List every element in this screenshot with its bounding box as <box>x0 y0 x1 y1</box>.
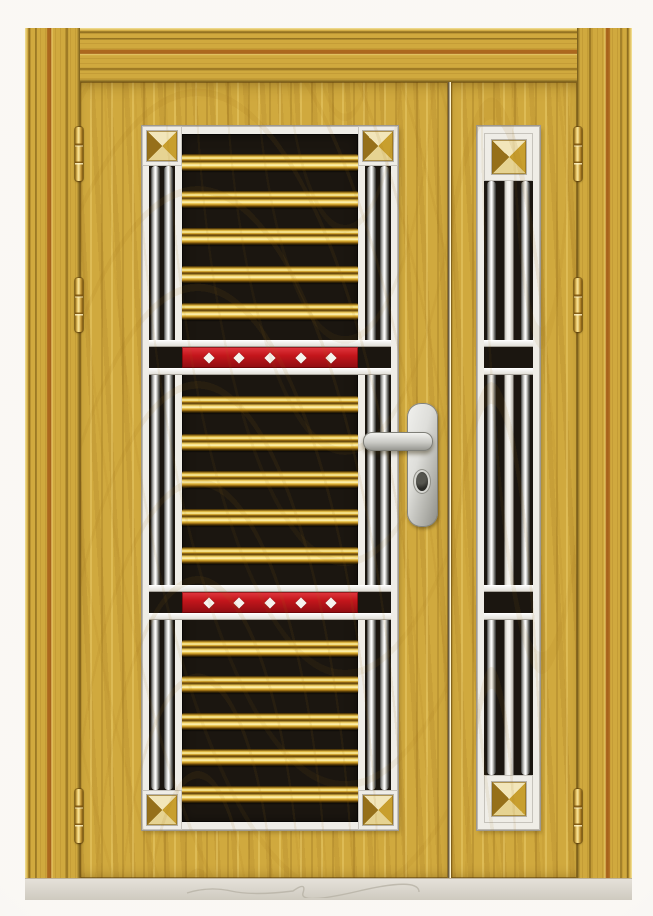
chrome-bar <box>521 181 530 775</box>
gold-bar <box>182 396 358 413</box>
door-hinge <box>574 278 582 332</box>
door-hinge <box>75 278 83 332</box>
gold-bar <box>182 676 358 693</box>
door-hinge <box>75 789 83 843</box>
pyramid-stud <box>363 131 393 161</box>
door-product-photo <box>0 0 653 916</box>
cross-rail-lower <box>149 585 391 620</box>
white-rail <box>149 340 391 347</box>
side-panel-leaf <box>451 82 577 878</box>
door-frame-top-molding <box>25 28 632 82</box>
chrome-bar <box>164 166 173 790</box>
cross-rail-infill <box>484 592 533 613</box>
gold-bar <box>182 228 358 245</box>
white-rail <box>484 613 533 620</box>
gold-bar-section-bottom <box>182 620 358 822</box>
cross-rail-upper <box>149 340 391 375</box>
corner-stud-block <box>358 126 398 166</box>
diamond-ornament <box>295 597 306 608</box>
side-bar-track <box>484 181 533 775</box>
white-rail <box>149 613 391 620</box>
chrome-bar <box>151 166 160 790</box>
pyramid-stud <box>147 131 177 161</box>
handle-backplate <box>407 403 438 527</box>
diamond-ornament <box>203 597 214 608</box>
white-rail <box>149 585 391 592</box>
gold-bar <box>182 640 358 657</box>
door-handle <box>363 403 438 527</box>
diamond-ornament <box>234 597 245 608</box>
door-frame-right-molding <box>577 28 632 878</box>
gold-bar <box>182 303 358 320</box>
main-grille-panel <box>142 126 398 830</box>
handle-lever <box>363 432 433 451</box>
white-rail <box>484 585 533 592</box>
red-accent-band <box>182 347 358 368</box>
diamond-ornament <box>234 352 245 363</box>
white-rail <box>484 368 533 375</box>
grille-left-column <box>142 166 182 790</box>
corner-stud-block <box>142 790 182 830</box>
main-door-leaf <box>80 82 448 878</box>
leaf-seam <box>448 82 451 878</box>
gold-bar-section-middle <box>182 375 358 585</box>
door-frame-left-molding <box>25 28 80 878</box>
gold-bar-section-top <box>182 134 358 340</box>
corner-stud-block <box>142 126 182 166</box>
pyramid-stud <box>363 795 393 825</box>
diamond-ornament <box>264 352 275 363</box>
cross-rail-infill <box>484 347 533 368</box>
white-flat-bar <box>504 181 513 775</box>
gold-bar <box>182 547 358 564</box>
corner-stud-block <box>358 790 398 830</box>
diamond-ornament <box>295 352 306 363</box>
pyramid-stud <box>492 782 526 816</box>
diamond-ornament <box>264 597 275 608</box>
door-hinge <box>574 127 582 181</box>
gold-bar <box>182 749 358 766</box>
keyhole <box>416 472 428 491</box>
gold-bar <box>182 509 358 526</box>
white-rail <box>149 368 391 375</box>
gold-bar <box>182 471 358 488</box>
door-hinge <box>574 789 582 843</box>
door-hinge <box>75 127 83 181</box>
side-cross-rail-upper <box>484 340 533 375</box>
gold-bar <box>182 786 358 803</box>
gold-bar <box>182 434 358 451</box>
stud-block <box>484 775 533 823</box>
threshold-strip <box>25 878 632 900</box>
chrome-bar <box>487 181 496 775</box>
faint-handwriting-mark <box>175 880 495 898</box>
gold-bar <box>182 713 358 730</box>
red-accent-band <box>182 592 358 613</box>
side-grille-panel <box>477 126 540 830</box>
diamond-ornament <box>326 597 337 608</box>
pyramid-stud <box>492 140 526 174</box>
pyramid-stud <box>147 795 177 825</box>
gold-bar <box>182 154 358 171</box>
gold-bar <box>182 266 358 283</box>
white-rail <box>484 340 533 347</box>
diamond-ornament <box>326 352 337 363</box>
chrome-bar-track <box>149 166 175 790</box>
diamond-ornament <box>203 352 214 363</box>
gold-bar <box>182 191 358 208</box>
stud-block <box>484 133 533 181</box>
side-cross-rail-lower <box>484 585 533 620</box>
